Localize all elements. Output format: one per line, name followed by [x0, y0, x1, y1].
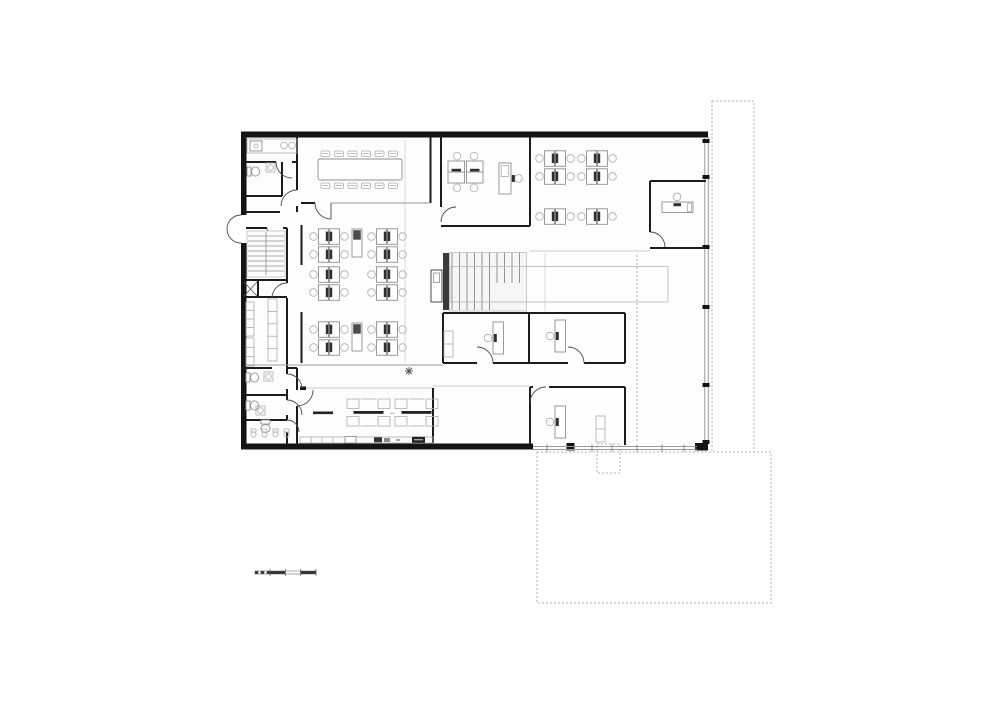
elevator-shaft	[431, 270, 442, 302]
furniture-toilet-r	[247, 167, 260, 176]
site-dashed-rect	[712, 101, 754, 452]
furniture-locker	[352, 229, 362, 257]
stair-hatch-band	[443, 253, 449, 310]
conference-table	[318, 159, 402, 180]
drawing-canvas	[0, 0, 1000, 706]
scale-bar	[255, 569, 316, 576]
furniture-plant	[405, 367, 413, 375]
furniture-toilet-r	[246, 401, 259, 410]
west-stair	[247, 231, 285, 277]
site-dashed-rect	[537, 452, 771, 603]
site-dashed-rect	[597, 444, 620, 473]
floor-plan-svg	[0, 0, 1000, 706]
furniture-locker	[352, 323, 362, 351]
side-table	[313, 412, 333, 415]
furniture-toilet-r	[246, 373, 259, 382]
